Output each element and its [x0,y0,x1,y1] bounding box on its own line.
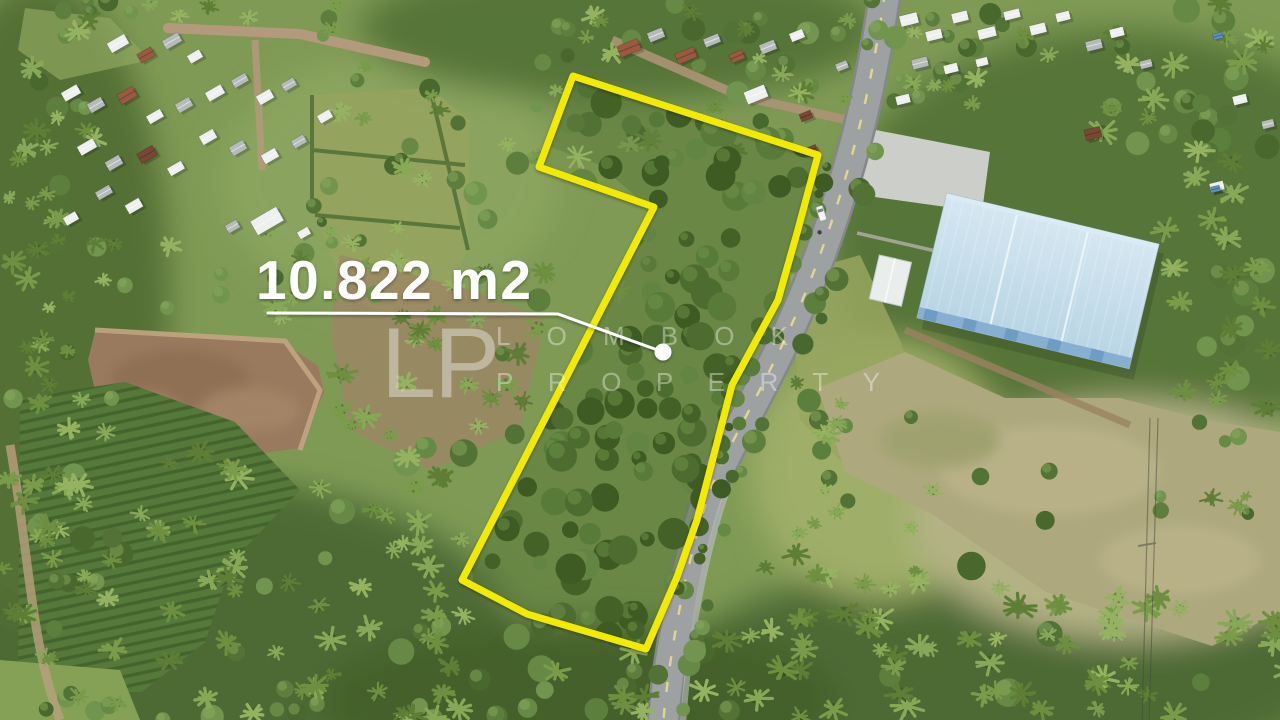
area-label: 10.822 m2 [256,249,533,311]
aerial-property-photo: 10.822 m2 LP LOMBOK PROPERTY [0,0,1280,720]
watermark-logo: LP [381,307,498,418]
